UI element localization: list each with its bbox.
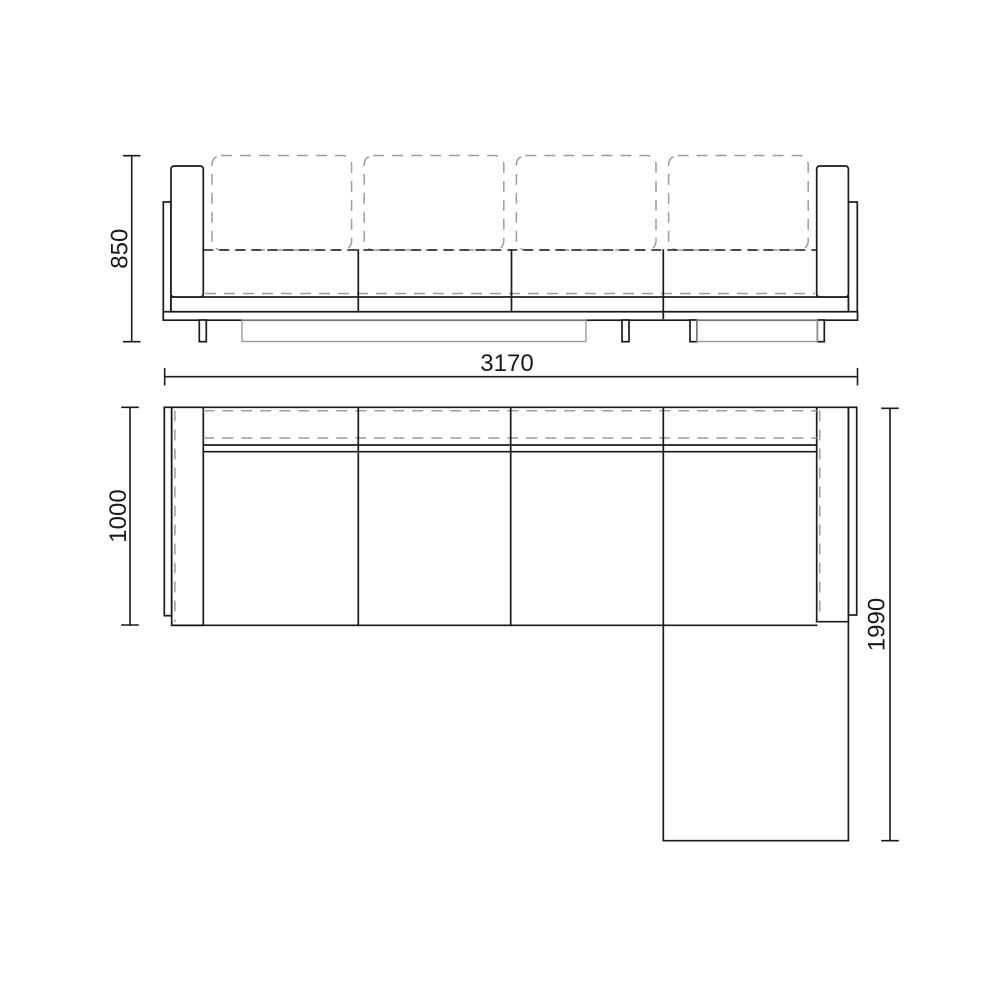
back-cushion-2 [364, 156, 504, 251]
seat-base-rail [171, 297, 848, 312]
rear-panel-left [163, 202, 171, 320]
plan-side-panel-right [848, 407, 856, 615]
back-cushion-4 [669, 156, 809, 251]
plan-left-armrest [172, 407, 204, 625]
front-elevation-view: 850 3170 [107, 156, 858, 385]
dimension-label-height: 850 [107, 229, 134, 269]
dimension-depth: 1000 [105, 407, 138, 625]
leg-1 [199, 320, 206, 342]
sofa-technical-drawing: 850 3170 [0, 0, 1000, 1000]
plan-side-panel-left [164, 407, 171, 615]
back-cushion-3 [516, 156, 656, 251]
dimension-width: 3170 [165, 350, 858, 385]
right-armrest [817, 166, 849, 297]
leg-3 [690, 320, 697, 342]
left-armrest [171, 166, 203, 297]
rear-rail-right [697, 320, 817, 342]
back-cushion-1 [212, 156, 352, 251]
dimension-label-width: 3170 [480, 350, 533, 377]
leg-4 [817, 320, 824, 342]
plinth [163, 312, 857, 321]
technical-drawing-canvas: 850 3170 [0, 0, 1000, 1000]
plan-view: 1000 1990 [105, 407, 898, 840]
dimension-label-chaise-length: 1990 [864, 598, 891, 651]
rear-rail-left [242, 320, 586, 342]
dimension-label-depth: 1000 [105, 489, 132, 542]
dimension-chaise-length: 1990 [864, 408, 899, 840]
leg-2 [622, 320, 629, 342]
rear-panel-right [848, 202, 857, 320]
dimension-height: 850 [107, 156, 140, 342]
